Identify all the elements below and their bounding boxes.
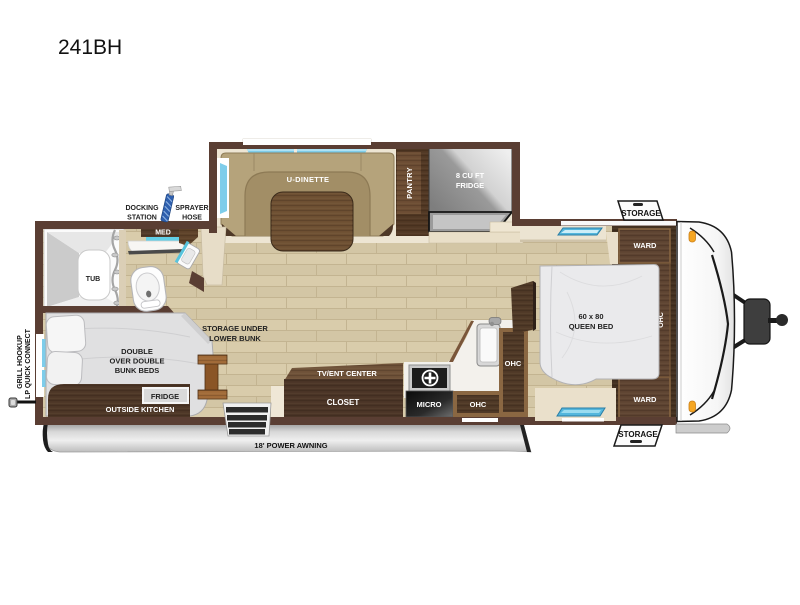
svg-text:OVER DOUBLE: OVER DOUBLE: [109, 357, 164, 366]
svg-text:STORAGE: STORAGE: [621, 209, 661, 218]
svg-text:CLOSET: CLOSET: [327, 398, 360, 407]
svg-text:GRILL HOOKUP: GRILL HOOKUP: [17, 335, 24, 389]
svg-text:WARD: WARD: [634, 395, 657, 404]
svg-text:WARD: WARD: [634, 241, 657, 250]
svg-text:DOCKING: DOCKING: [125, 205, 159, 212]
svg-text:OUTSIDE KITCHEN: OUTSIDE KITCHEN: [106, 405, 175, 414]
svg-text:LOWER BUNK: LOWER BUNK: [209, 334, 261, 343]
svg-text:LP QUICK CONNECT: LP QUICK CONNECT: [25, 328, 32, 399]
svg-text:TUB: TUB: [86, 276, 100, 283]
svg-text:PANTRY: PANTRY: [405, 167, 414, 199]
svg-text:FRIDGE: FRIDGE: [456, 181, 484, 190]
svg-text:OHC: OHC: [505, 359, 522, 368]
svg-text:OHC: OHC: [470, 400, 487, 409]
svg-text:STATION: STATION: [127, 215, 157, 222]
svg-text:U-DINETTE: U-DINETTE: [287, 175, 330, 184]
svg-text:STORAGE: STORAGE: [618, 430, 658, 439]
svg-text:241BH: 241BH: [58, 36, 122, 59]
svg-text:MED: MED: [155, 230, 171, 237]
svg-text:SPRAYER: SPRAYER: [175, 205, 208, 212]
svg-text:TV/ENT CENTER: TV/ENT CENTER: [317, 369, 377, 378]
svg-text:60 x 80: 60 x 80: [578, 312, 603, 321]
svg-text:MICRO: MICRO: [417, 400, 442, 409]
svg-text:FRIDGE: FRIDGE: [151, 392, 179, 401]
svg-text:8 CU FT: 8 CU FT: [456, 171, 485, 180]
svg-text:QUEEN BED: QUEEN BED: [569, 322, 614, 331]
svg-text:BUNK BEDS: BUNK BEDS: [115, 366, 160, 375]
svg-text:HOSE: HOSE: [182, 215, 202, 222]
svg-text:18' POWER AWNING: 18' POWER AWNING: [254, 441, 327, 450]
svg-text:DOUBLE: DOUBLE: [121, 347, 153, 356]
svg-text:STORAGE UNDER: STORAGE UNDER: [202, 324, 268, 333]
